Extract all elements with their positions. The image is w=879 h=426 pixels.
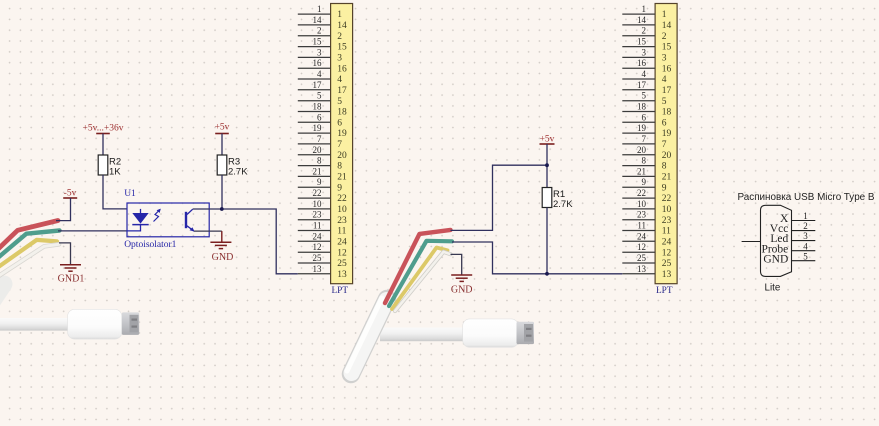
svg-text:17: 17 xyxy=(313,80,323,90)
svg-text:9: 9 xyxy=(662,183,667,193)
svg-text:GND1: GND1 xyxy=(58,273,85,284)
svg-text:24: 24 xyxy=(637,231,647,241)
svg-text:21: 21 xyxy=(662,173,672,183)
svg-text:13: 13 xyxy=(637,264,647,274)
svg-text:11: 11 xyxy=(313,221,322,231)
svg-text:12: 12 xyxy=(637,242,646,252)
svg-text:14: 14 xyxy=(662,21,672,31)
svg-text:U1: U1 xyxy=(124,189,136,199)
svg-text:20: 20 xyxy=(337,151,347,161)
svg-text:14: 14 xyxy=(637,15,647,25)
svg-text:23: 23 xyxy=(637,210,647,220)
svg-text:10: 10 xyxy=(637,199,647,209)
svg-text:17: 17 xyxy=(337,86,347,96)
svg-text:5: 5 xyxy=(317,91,322,101)
svg-text:13: 13 xyxy=(313,264,323,274)
svg-text:10: 10 xyxy=(313,199,323,209)
svg-text:24: 24 xyxy=(313,231,323,241)
svg-text:4: 4 xyxy=(642,69,647,79)
svg-text:5: 5 xyxy=(642,91,647,101)
svg-text:7: 7 xyxy=(642,134,647,144)
svg-text:19: 19 xyxy=(313,123,323,133)
svg-text:19: 19 xyxy=(637,123,647,133)
svg-text:15: 15 xyxy=(637,37,647,47)
svg-text:25: 25 xyxy=(637,253,647,263)
svg-text:9: 9 xyxy=(317,177,322,187)
svg-text:1K: 1K xyxy=(109,167,121,178)
svg-text:14: 14 xyxy=(313,15,323,25)
svg-text:25: 25 xyxy=(337,259,347,269)
svg-text:7: 7 xyxy=(337,140,342,150)
svg-text:4: 4 xyxy=(337,75,342,85)
svg-text:GND: GND xyxy=(212,252,234,263)
svg-text:6: 6 xyxy=(642,112,647,122)
svg-text:25: 25 xyxy=(313,253,323,263)
svg-text:Распиновка USB Micro Type B: Распиновка USB Micro Type B xyxy=(738,192,875,203)
svg-text:3: 3 xyxy=(642,47,647,57)
svg-text:LPT: LPT xyxy=(656,286,673,296)
svg-text:20: 20 xyxy=(662,151,672,161)
svg-text:14: 14 xyxy=(337,21,347,31)
svg-text:8: 8 xyxy=(662,162,667,172)
svg-text:10: 10 xyxy=(662,205,672,215)
svg-text:LPT: LPT xyxy=(332,286,349,296)
svg-text:13: 13 xyxy=(662,270,672,280)
svg-text:9: 9 xyxy=(642,177,647,187)
svg-text:20: 20 xyxy=(637,145,647,155)
svg-text:18: 18 xyxy=(313,102,323,112)
svg-text:20: 20 xyxy=(313,145,323,155)
svg-text:24: 24 xyxy=(662,237,672,247)
svg-text:22: 22 xyxy=(337,194,347,204)
svg-text:15: 15 xyxy=(662,43,672,53)
svg-text:21: 21 xyxy=(337,173,347,183)
svg-text:18: 18 xyxy=(337,108,347,118)
svg-text:21: 21 xyxy=(637,166,646,176)
svg-text:12: 12 xyxy=(313,242,322,252)
svg-text:Lite: Lite xyxy=(765,282,781,293)
svg-text:5: 5 xyxy=(337,97,342,107)
svg-text:16: 16 xyxy=(313,58,323,68)
svg-text:12: 12 xyxy=(662,248,672,258)
svg-text:2.7K: 2.7K xyxy=(553,199,573,210)
svg-text:2.7K: 2.7K xyxy=(228,167,248,178)
svg-text:19: 19 xyxy=(337,129,347,139)
svg-text:18: 18 xyxy=(662,108,672,118)
svg-text:16: 16 xyxy=(337,64,347,74)
svg-text:GND: GND xyxy=(763,253,788,265)
svg-text:23: 23 xyxy=(337,216,347,226)
svg-text:11: 11 xyxy=(662,227,671,237)
svg-text:13: 13 xyxy=(337,270,347,280)
svg-text:4: 4 xyxy=(317,69,322,79)
svg-text:17: 17 xyxy=(637,80,647,90)
svg-text:19: 19 xyxy=(662,129,672,139)
svg-text:23: 23 xyxy=(662,216,672,226)
svg-text:6: 6 xyxy=(317,112,322,122)
svg-text:2: 2 xyxy=(662,32,667,42)
svg-text:22: 22 xyxy=(662,194,672,204)
svg-text:17: 17 xyxy=(662,86,672,96)
svg-text:23: 23 xyxy=(313,210,323,220)
svg-text:+5v...+36v: +5v...+36v xyxy=(83,123,124,133)
svg-text:24: 24 xyxy=(337,237,347,247)
svg-text:3: 3 xyxy=(662,54,667,64)
svg-text:15: 15 xyxy=(337,43,347,53)
svg-text:2: 2 xyxy=(337,32,342,42)
svg-text:1: 1 xyxy=(337,10,342,20)
svg-text:Optoisolator1: Optoisolator1 xyxy=(124,240,176,250)
svg-text:5: 5 xyxy=(803,251,808,261)
svg-text:9: 9 xyxy=(337,183,342,193)
svg-text:22: 22 xyxy=(637,188,646,198)
svg-text:7: 7 xyxy=(317,134,322,144)
svg-text:3: 3 xyxy=(803,231,808,241)
svg-text:1: 1 xyxy=(642,4,647,14)
svg-text:-5v: -5v xyxy=(64,188,77,198)
svg-text:1: 1 xyxy=(803,211,808,221)
svg-text:4: 4 xyxy=(803,241,808,251)
svg-text:3: 3 xyxy=(317,47,322,57)
svg-text:11: 11 xyxy=(637,221,646,231)
svg-text:2: 2 xyxy=(803,221,808,231)
svg-text:7: 7 xyxy=(662,140,667,150)
svg-text:8: 8 xyxy=(317,156,322,166)
svg-text:16: 16 xyxy=(637,58,647,68)
svg-text:21: 21 xyxy=(313,166,322,176)
svg-text:+5v: +5v xyxy=(215,122,230,132)
svg-text:25: 25 xyxy=(662,259,672,269)
svg-text:GND: GND xyxy=(451,285,473,296)
svg-text:16: 16 xyxy=(662,64,672,74)
svg-text:5: 5 xyxy=(662,97,667,107)
svg-text:11: 11 xyxy=(337,227,346,237)
svg-text:12: 12 xyxy=(337,248,347,258)
svg-text:10: 10 xyxy=(337,205,347,215)
svg-text:1: 1 xyxy=(317,4,322,14)
svg-text:8: 8 xyxy=(642,156,647,166)
svg-text:18: 18 xyxy=(637,102,647,112)
svg-text:1: 1 xyxy=(662,10,667,20)
svg-text:3: 3 xyxy=(337,54,342,64)
svg-text:8: 8 xyxy=(337,162,342,172)
svg-text:2: 2 xyxy=(642,26,647,36)
svg-text:22: 22 xyxy=(313,188,322,198)
svg-text:+5v: +5v xyxy=(540,134,555,144)
svg-text:15: 15 xyxy=(313,37,323,47)
svg-text:6: 6 xyxy=(337,118,342,128)
svg-text:6: 6 xyxy=(662,118,667,128)
svg-text:2: 2 xyxy=(317,26,322,36)
svg-text:4: 4 xyxy=(662,75,667,85)
